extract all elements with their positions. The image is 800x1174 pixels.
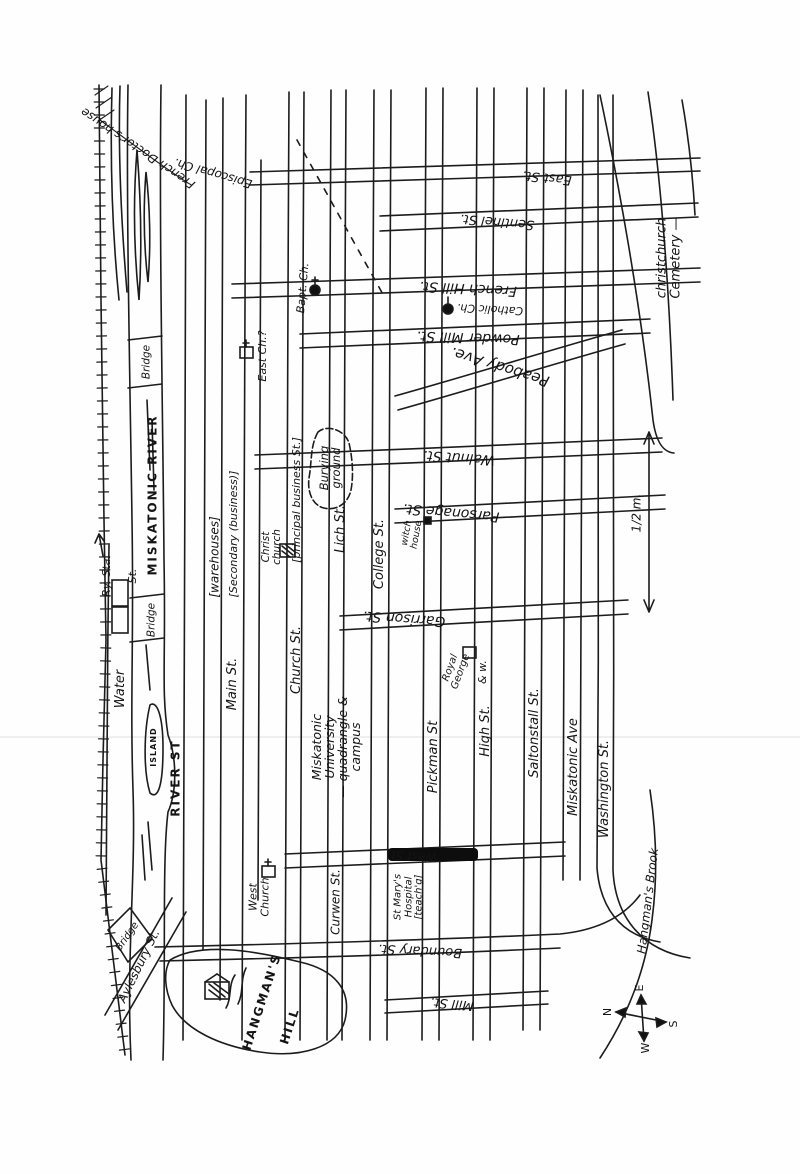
street-high-e <box>490 88 494 1040</box>
main-st-secondary-note: [Secondary (business)] <box>228 471 240 598</box>
street-label-main-st: Main St. <box>226 658 240 711</box>
railway-tie <box>110 971 120 972</box>
arkham-sketch-map: French Doctor's house Episcopal Ch. East… <box>0 0 800 1174</box>
current-streak-2 <box>146 645 150 690</box>
compass-s: S <box>668 1021 680 1028</box>
scale-arrow <box>644 432 654 612</box>
compass-w: W <box>640 1043 652 1054</box>
street-sentinel-1 <box>380 203 698 216</box>
note-west-church: West Church <box>247 877 270 916</box>
bridge-mid-label: Bridge <box>146 603 157 637</box>
railway-tie <box>99 881 109 882</box>
street-water <box>106 545 109 915</box>
railway-tie <box>108 959 118 960</box>
river-upstream-1 <box>111 88 119 300</box>
street-east-1 <box>250 158 700 172</box>
railway-tie <box>104 920 114 921</box>
railway-tie <box>115 1010 125 1011</box>
note-burying-ground: Burying ground <box>318 446 342 491</box>
street-high-w <box>473 88 477 1040</box>
island-sliver-2 <box>144 172 149 282</box>
street-label-washington-st: Washington St. <box>598 740 612 838</box>
railway-tie <box>111 984 121 985</box>
west-church-icon <box>262 859 275 877</box>
station-arrow <box>95 534 104 556</box>
street-label-west-st: West St. <box>387 848 438 863</box>
street-label-lich-st: Lich St. <box>334 505 348 553</box>
hill-house-icon <box>205 974 229 999</box>
street-warehouse-w <box>203 100 206 950</box>
warehouses-note: [warehouses] <box>209 516 222 597</box>
street-label-river-st: RIVER ST <box>170 739 183 816</box>
street-label-powder-mill-st: Powder Mill St. <box>416 328 520 346</box>
street-label-pickman-st: Pickman St <box>427 721 441 793</box>
street-label-water-st: Water <box>114 670 128 709</box>
street-river-st <box>183 95 186 1040</box>
street-label-church-st: Church St. <box>290 626 304 694</box>
street-label-mill-st: Mill St. <box>430 994 475 1011</box>
island-sliver-1 <box>135 150 141 300</box>
street-church-w <box>285 92 289 1040</box>
street-label-miskatonic-ave: Miskatonic Ave <box>567 718 581 816</box>
railway-station-label: Ry. Sta. <box>101 555 113 597</box>
street-label-saltonstall-st: Saltonstall St. <box>528 688 542 778</box>
baptist-church-icon <box>310 277 320 295</box>
street-label-high-st: High St. <box>479 705 493 757</box>
note-st-marys-hospital: St Mary's Hospital [teach'g] <box>393 874 425 920</box>
current-streak-3 <box>142 822 152 880</box>
station-block-1 <box>112 580 128 606</box>
note-christ-church: Christ church <box>261 529 283 565</box>
island-label: ISLAND <box>150 727 158 766</box>
railway-tie <box>100 894 110 895</box>
street-label-college-st: College St. <box>373 519 387 589</box>
station-block-2 <box>112 607 128 633</box>
street-church-e <box>300 92 304 1040</box>
cemetery-label: christchurch Cemetery — <box>655 193 682 324</box>
street-label-boundary-st: Boundary St. <box>378 941 463 959</box>
railway-tie <box>118 1036 128 1037</box>
bridge-top-label: Bridge <box>141 345 152 379</box>
river-upstream-2 <box>119 86 127 292</box>
catholic-church-icon <box>443 297 453 314</box>
street-label-curwen-st: Curwen St. <box>330 869 343 935</box>
railway-tie <box>119 1049 129 1050</box>
note-east-church: East Ch.? <box>257 330 269 381</box>
street-college-e <box>387 90 391 1040</box>
bridge-street-label: St. <box>127 569 139 584</box>
street-pickman-e <box>439 88 443 1040</box>
note-miskatonic-university: Miskatonic University — quadrangle & cam… <box>310 696 363 797</box>
street-sentinel-2 <box>380 217 698 231</box>
compass-e: E <box>634 985 646 992</box>
scale-label: 1/2 m. <box>631 494 644 533</box>
street-main <box>242 95 246 1040</box>
note-catholic-church: Catholic Ch. <box>457 302 524 317</box>
church-st-principal-note: [principal business St.] <box>291 437 303 563</box>
compass-n: N <box>602 1008 614 1016</box>
river-name-label: MISKATONIC RIVER <box>147 414 160 575</box>
high-st-note: & w. <box>477 660 489 684</box>
east-church-icon <box>240 340 253 358</box>
street-saltonstall-e <box>540 88 544 1030</box>
